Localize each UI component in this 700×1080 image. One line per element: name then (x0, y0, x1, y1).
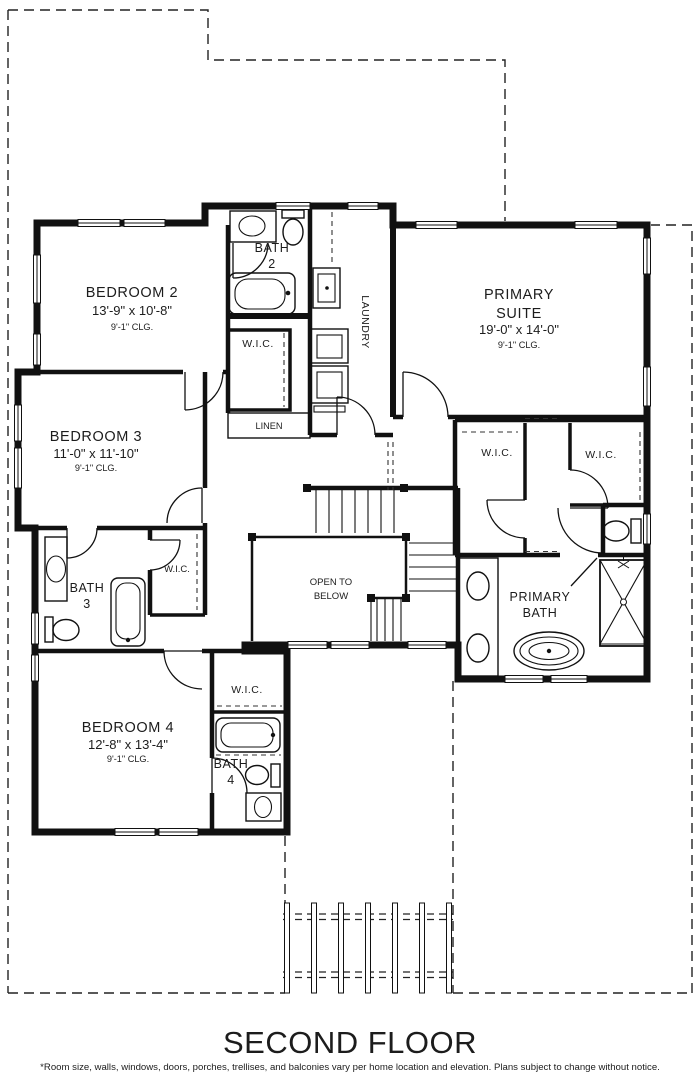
window (15, 448, 22, 488)
primary-suite-label-2: SUITE (496, 306, 542, 322)
bedroom2-clg: 9'-1" CLG. (111, 322, 153, 332)
wic-bath2-label: W.I.C. (242, 338, 274, 350)
window (124, 220, 165, 227)
laundry-sink (313, 268, 340, 308)
window (32, 655, 39, 681)
primary-suite-label-1: PRIMARY (484, 287, 554, 303)
window (408, 642, 446, 649)
bath4-tub (216, 718, 280, 752)
window (34, 255, 41, 303)
window (644, 367, 651, 406)
bath3-toilet (45, 617, 79, 642)
window (644, 514, 651, 544)
bath4-toilet (246, 764, 281, 787)
disclaimer-text: *Room size, walls, windows, doors, porch… (40, 1062, 660, 1073)
primary-vanity (459, 558, 498, 676)
window (416, 222, 457, 229)
bedroom2-label: BEDROOM 2 (86, 285, 178, 301)
bath4-sink (246, 793, 281, 821)
bedroom3-clg: 9'-1" CLG. (75, 463, 117, 473)
shower-head-icon (618, 556, 629, 568)
bedroom2-dims: 13'-9" x 10'-8" (92, 303, 172, 318)
shower-door (571, 558, 597, 586)
window (159, 829, 198, 836)
trellis-beams (285, 903, 452, 993)
window (115, 829, 155, 836)
labels: BEDROOM 2 13'-9" x 10'-8" 9'-1" CLG. BAT… (50, 241, 617, 787)
window (505, 676, 543, 683)
page-title: SECOND FLOOR (223, 1025, 477, 1060)
bath3-number: 3 (83, 597, 91, 611)
bath3-label: BATH (70, 581, 105, 595)
dryer (311, 366, 348, 412)
primary-bath-label-1: PRIMARY (510, 590, 571, 604)
dashed-outline (8, 10, 692, 993)
window (15, 405, 22, 441)
wic2-door (570, 470, 608, 508)
primary-suite-clg: 9'-1" CLG. (498, 340, 540, 350)
bedroom4-clg: 9'-1" CLG. (107, 754, 149, 764)
bedroom3-label: BEDROOM 3 (50, 429, 142, 445)
bath2-toilet (282, 210, 304, 245)
window (78, 220, 120, 227)
washer (311, 329, 348, 363)
bath3-sink (45, 537, 67, 601)
open-to-below-label-2: BELOW (314, 591, 348, 602)
bedroom3-dims: 11'-0" x 11'-10" (53, 446, 139, 461)
bedroom3-door (167, 488, 202, 523)
window (551, 676, 587, 683)
window (288, 642, 327, 649)
bath2-number: 2 (268, 257, 276, 271)
trellis (283, 903, 453, 993)
bedroom4-label: BEDROOM 4 (82, 720, 174, 736)
wic1-door (487, 500, 525, 538)
window (348, 203, 378, 210)
window (575, 222, 617, 229)
bath2-sink (230, 211, 276, 242)
window (32, 613, 39, 644)
stairs (316, 490, 456, 641)
shower (600, 556, 647, 646)
window (644, 238, 651, 274)
wic-bedroom4-label: W.I.C. (231, 684, 263, 696)
primary-suite-dims: 19'-0" x 14'-0" (479, 322, 559, 337)
bedroom4-door (164, 651, 202, 689)
window (276, 203, 310, 210)
laundry-label: LAUNDRY (359, 295, 371, 349)
primary-bath-label-2: BATH (523, 606, 558, 620)
open-to-below-label-1: OPEN TO (310, 577, 352, 588)
bath4-label: BATH (214, 757, 249, 771)
linen-label: LINEN (255, 421, 282, 431)
bath3-tub (111, 578, 145, 646)
bath2-tub (229, 273, 295, 314)
window (34, 334, 41, 365)
wic1-label: W.I.C. (481, 447, 513, 459)
floor-plan: BEDROOM 2 13'-9" x 10'-8" 9'-1" CLG. BAT… (0, 0, 700, 1080)
toilet-room-toilet (603, 519, 641, 543)
wic2-label: W.I.C. (585, 449, 617, 461)
wic-bedroom3-label: W.I.C. (164, 564, 190, 575)
bath2-label: BATH (255, 241, 290, 255)
primary-suite-door (403, 372, 448, 417)
bath4-number: 4 (227, 773, 235, 787)
bedroom4-dims: 12'-8" x 13'-4" (88, 737, 168, 752)
toilet-room-door (558, 508, 603, 553)
window (331, 642, 369, 649)
bath3-door (67, 528, 97, 558)
dashed-details (197, 212, 640, 755)
primary-tub (514, 632, 584, 670)
